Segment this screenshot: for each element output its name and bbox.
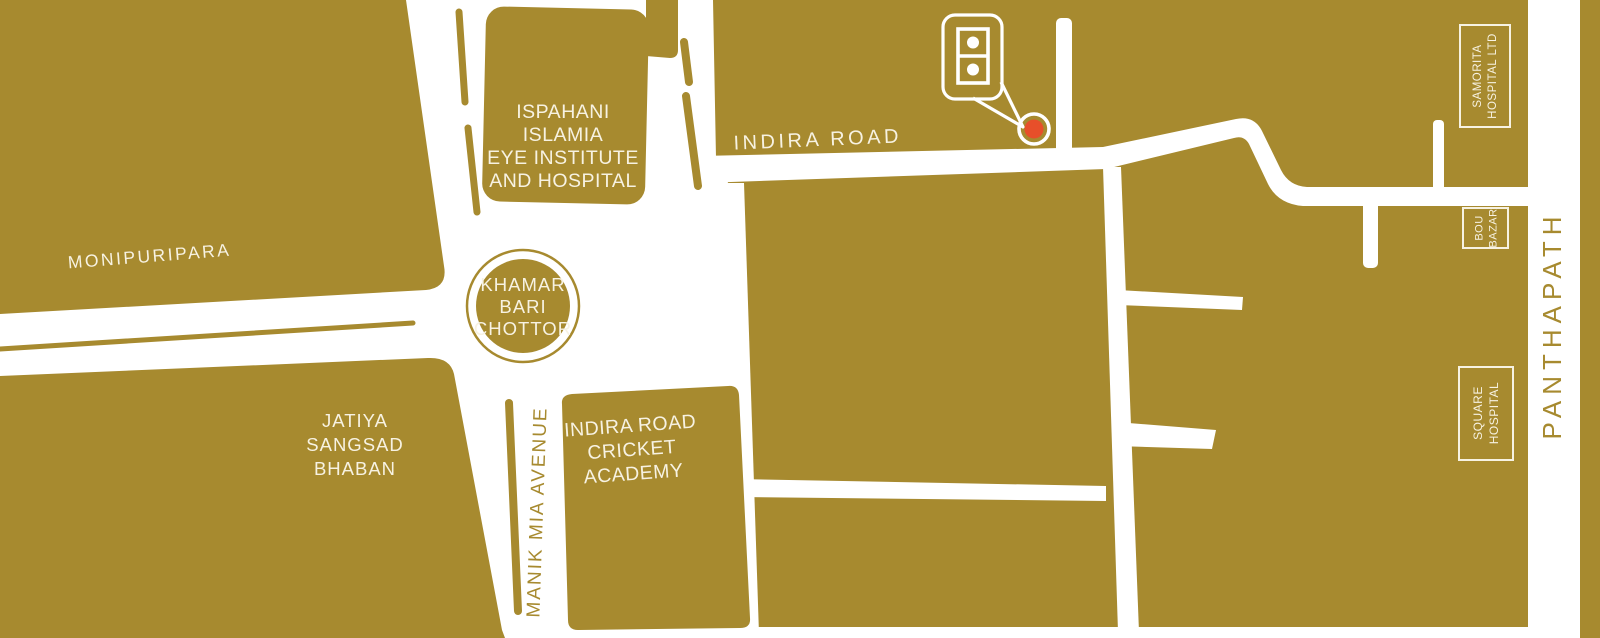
label-khamar-line2: BARI [499, 296, 546, 317]
label-jatiya-line1: JATIYA [322, 410, 388, 431]
label-jatiya-line2: SANGSAD [306, 434, 403, 455]
block-ispahani-north-spur [646, 0, 678, 58]
label-ispahani-line2: ISLAMIA [523, 124, 603, 146]
block-jatiya [0, 358, 505, 638]
label-khamar-line1: KHAMAR [480, 274, 565, 295]
label-manik-mia-avenue: MANIK MIA AVENUE [523, 406, 551, 618]
median-dash-northwest-1 [459, 12, 465, 102]
label-khamar-line3: CHOTTOR [474, 318, 572, 339]
block-right-region [713, 0, 1600, 638]
map-svg: MONIPURIPARA ISPAHANI ISLAMIA EYE INSTIT… [0, 0, 1600, 638]
label-ispahani-line3: EYE INSTITUTE [487, 147, 639, 169]
block-monipuripara [0, 0, 445, 314]
samorita-line2: HOSPITAL LTD [1487, 33, 1499, 119]
label-ispahani-line4: AND HOSPITAL [489, 170, 637, 192]
square-hospital-line2: HOSPITAL [1487, 382, 1501, 444]
label-panthapath: PANTHAPATH [1537, 210, 1567, 439]
median-dash-north-2 [686, 96, 698, 186]
square-hospital-line1: SQUARE [1471, 386, 1485, 440]
location-map: MONIPURIPARA ISPAHANI ISLAMIA EYE INSTIT… [0, 0, 1600, 638]
road-marker-stub [1056, 18, 1072, 154]
median-manik-mia [509, 403, 518, 611]
label-ispahani-line1: ISPAHANI [516, 101, 610, 123]
bou-bazar-line2: BAZAR [1488, 208, 1500, 247]
bou-bazar-line1: BOU [1474, 215, 1486, 240]
label-jatiya-line3: BHABAN [314, 458, 396, 479]
samorita-line1: SAMORITA [1472, 44, 1484, 107]
road-stub-north [1433, 120, 1444, 200]
median-dash-northwest-2 [468, 128, 477, 212]
building-window-top [967, 37, 979, 49]
median-dash-north-1 [684, 42, 689, 82]
median-west-avenue [0, 323, 413, 349]
location-dot [1025, 120, 1044, 139]
road-stub-south [1363, 198, 1378, 268]
building-window-bottom [967, 64, 979, 76]
